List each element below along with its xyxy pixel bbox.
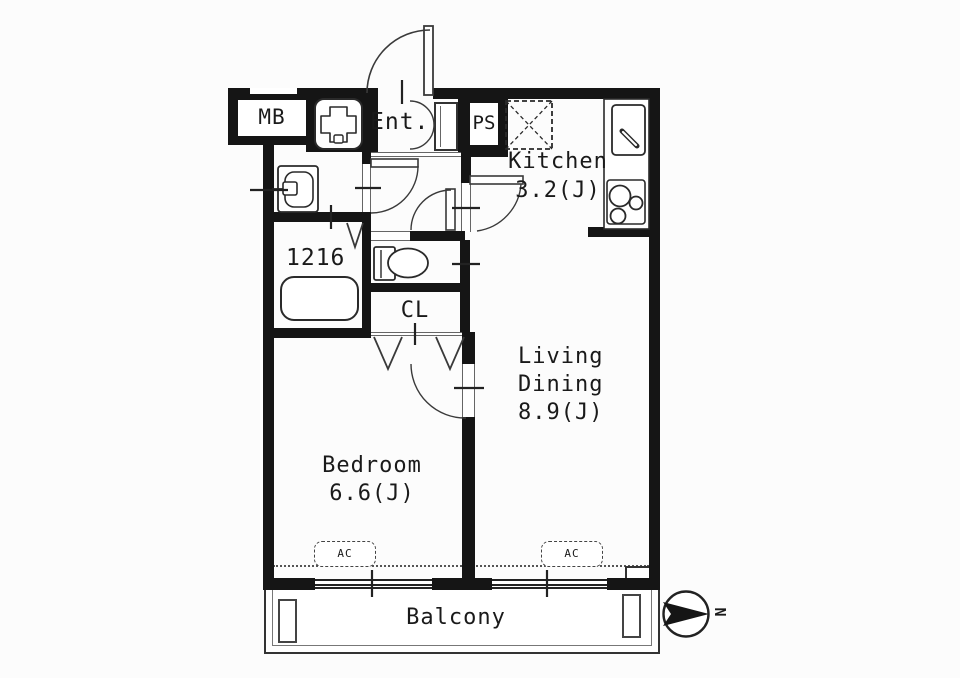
north-label: N [711,599,729,625]
closet-bifold-doors [374,337,464,369]
bedroom-size: 6.6(J) [308,480,436,508]
kitchen-size: 3.2(J) [497,176,619,205]
living-name-line1: Living [518,343,603,371]
entrance-door [367,26,433,95]
bedroom-door-arc [411,364,466,418]
washroom-door [371,159,418,213]
balcony-label: Balcony [380,605,532,630]
ac-box-living: AC [541,541,603,567]
ac-label: AC [337,547,352,560]
entrance-label: Ent. [370,109,429,135]
living-size: 8.9(J) [518,399,603,427]
washing-machine-icon [315,99,362,149]
toilet-icon [374,247,428,280]
ac-box-bedroom: AC [314,541,376,567]
ac-label: AC [564,547,579,560]
meter-box-label: MB [238,105,306,129]
closet-label: CL [390,298,440,323]
toilet-door [411,189,455,230]
bath-size-label: 1216 [286,245,345,271]
bathtub-icon [281,277,358,320]
refrigerator-space-icon [506,101,552,149]
kitchen-name: Kitchen [497,147,619,176]
fixtures-layer [0,0,960,678]
floor-plan: AC AC MB Ent. PS Kitchen 3.2(J) 1216 CL … [0,0,960,678]
kitchen-label: Kitchen 3.2(J) [497,147,619,205]
living-name-line2: Dining [518,371,603,399]
bedroom-label: Bedroom 6.6(J) [308,452,436,508]
pipe-space-label: PS [468,112,500,134]
bath-folding-door [347,223,363,247]
bedroom-name: Bedroom [308,452,436,480]
living-dining-label: Living Dining 8.9(J) [518,343,603,427]
north-arrow-icon [663,592,709,637]
